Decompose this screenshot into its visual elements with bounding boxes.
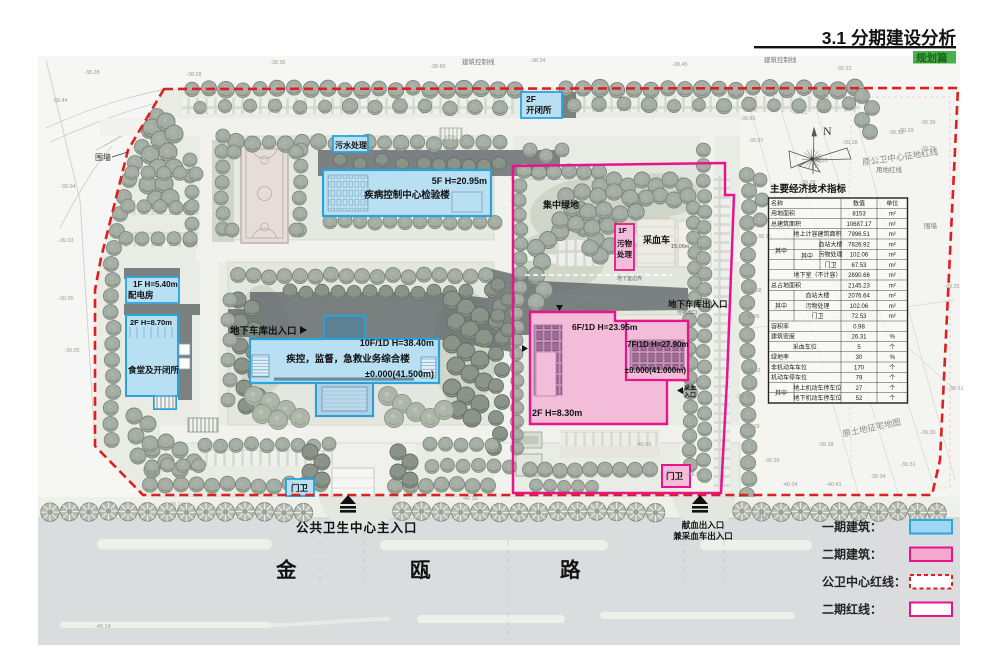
svg-text:其中: 其中: [801, 252, 813, 260]
svg-text:-40.14: -40.14: [168, 502, 184, 508]
svg-text:地下车库出入口: 地下车库出入口: [230, 325, 297, 337]
svg-text:-40.41: -40.41: [826, 482, 842, 488]
svg-text:-39.26: -39.26: [764, 458, 780, 464]
svg-text:2F: 2F: [526, 94, 536, 104]
svg-text:-39.31: -39.31: [900, 462, 916, 468]
svg-text:7826.92: 7826.92: [848, 242, 870, 248]
svg-text:27: 27: [856, 386, 863, 392]
svg-text:0.98: 0.98: [853, 324, 865, 330]
svg-text:疾病控制中心检验楼: 疾病控制中心检验楼: [364, 189, 450, 201]
svg-text:72.53: 72.53: [851, 314, 867, 320]
svg-text:m²: m²: [889, 294, 896, 300]
svg-text:2F H=8.30m: 2F H=8.30m: [532, 408, 582, 418]
svg-text:26.31: 26.31: [851, 335, 867, 341]
svg-text:围墙: 围墙: [95, 152, 111, 162]
svg-text:个: 个: [889, 344, 895, 351]
svg-text:-39.04: -39.04: [60, 184, 76, 190]
svg-text:52: 52: [856, 396, 863, 402]
svg-text:二期建筑：: 二期建筑：: [822, 547, 882, 562]
svg-text:m²: m²: [889, 273, 896, 279]
svg-text:m²: m²: [889, 232, 896, 238]
svg-text:一期建筑：: 一期建筑：: [822, 519, 882, 534]
svg-text:门卫: 门卫: [811, 312, 823, 320]
svg-text:规划篇: 规划篇: [916, 52, 948, 65]
svg-text:-38.95: -38.95: [744, 314, 760, 320]
svg-text:%: %: [890, 355, 896, 361]
svg-text:-39.30: -39.30: [920, 430, 936, 436]
svg-text:公共卫生中心主入口: 公共卫生中心主入口: [296, 520, 418, 535]
svg-text:102.06: 102.06: [850, 304, 869, 310]
svg-text:-38.28: -38.28: [84, 70, 100, 76]
svg-text:-39.11: -39.11: [746, 368, 761, 374]
svg-text:总建筑面积: 总建筑面积: [771, 220, 801, 228]
svg-text:主要经济技术指标: 主要经济技术指标: [770, 183, 847, 195]
svg-text:±0.000(41.500m): ±0.000(41.500m): [365, 369, 434, 379]
svg-text:总占地面积: 总占地面积: [771, 281, 801, 289]
svg-text:-38.45: -38.45: [672, 62, 688, 68]
svg-text:献血出入口: 献血出入口: [682, 520, 725, 530]
svg-text:m²: m²: [889, 314, 896, 320]
svg-text:用地面积: 用地面积: [771, 210, 795, 218]
svg-text:15.06m: 15.06m: [671, 244, 690, 250]
svg-text:食堂及开闭所: 食堂及开闭所: [128, 365, 180, 375]
svg-text:10687.17: 10687.17: [846, 222, 872, 228]
svg-text:-39.44: -39.44: [52, 98, 68, 104]
svg-text:地下机动车停车位: 地下机动车停车位: [793, 394, 841, 402]
svg-text:名称: 名称: [771, 199, 783, 207]
svg-text:-40.01: -40.01: [636, 442, 652, 448]
svg-text:2690.66: 2690.66: [848, 273, 870, 279]
svg-text:门卫: 门卫: [291, 483, 309, 493]
svg-text:-39.03: -39.03: [58, 238, 74, 244]
svg-text:1F H=5.40m: 1F H=5.40m: [133, 280, 178, 289]
svg-text:-40.14: -40.14: [95, 624, 111, 630]
svg-text:-39.28: -39.28: [818, 442, 834, 448]
svg-text:6F/1D H=23.95m: 6F/1D H=23.95m: [572, 322, 638, 332]
svg-text:%: %: [890, 335, 896, 341]
svg-text:-39.28: -39.28: [842, 140, 858, 146]
svg-text:m²: m²: [889, 242, 896, 248]
svg-text:血站大楼: 血站大楼: [818, 240, 842, 248]
svg-text:-38.28: -38.28: [186, 72, 202, 78]
svg-text:建筑控制线: 建筑控制线: [462, 57, 495, 66]
svg-text:-39.28: -39.28: [755, 514, 771, 520]
svg-text:3.1 分期建设分析: 3.1 分期建设分析: [822, 28, 957, 48]
svg-text:-39.19: -39.19: [744, 424, 760, 430]
svg-text:-39.81: -39.81: [740, 116, 756, 122]
svg-text:地上计容建筑面积: 地上计容建筑面积: [793, 230, 841, 238]
svg-text:m²: m²: [889, 263, 896, 269]
svg-text:污物出口: 污物出口: [677, 309, 697, 316]
svg-text:处理: 处理: [616, 249, 632, 259]
svg-text:机动车停车位: 机动车停车位: [771, 374, 807, 382]
svg-text:-38.36: -38.36: [270, 60, 286, 66]
svg-text:路: 路: [560, 558, 581, 582]
svg-text:10F/1D H=38.40m: 10F/1D H=38.40m: [360, 338, 434, 348]
svg-text:污物处理: 污物处理: [818, 251, 842, 259]
svg-text:-39.05: -39.05: [58, 296, 74, 302]
svg-text:-39.29: -39.29: [898, 128, 914, 134]
svg-text:其中: 其中: [775, 247, 787, 255]
svg-text:m²: m²: [889, 253, 896, 259]
svg-text:2076.64: 2076.64: [848, 294, 870, 300]
svg-text:地上机动车停车位: 地上机动车停车位: [793, 384, 841, 392]
svg-text:绿地率: 绿地率: [771, 353, 789, 361]
svg-text:N: N: [823, 124, 832, 138]
svg-text:个: 个: [889, 375, 895, 382]
svg-text:地下室（不计容）: 地下室（不计容）: [793, 271, 841, 279]
svg-text:30: 30: [856, 355, 863, 361]
svg-text:m²: m²: [889, 222, 896, 228]
svg-text:金: 金: [275, 558, 297, 582]
svg-text:地下室边界: 地下室边界: [617, 275, 642, 282]
svg-text:-39.25: -39.25: [944, 284, 960, 290]
svg-text:-39.97: -39.97: [748, 138, 764, 144]
svg-text:-39.34: -39.34: [870, 474, 886, 480]
svg-text:容积率: 容积率: [771, 322, 789, 330]
svg-text:m²: m²: [889, 283, 896, 289]
svg-text:-39.08: -39.08: [746, 288, 762, 294]
svg-text:7F/1D H=27.90m: 7F/1D H=27.90m: [627, 340, 689, 349]
svg-text:兼采血车出入口: 兼采血车出入口: [672, 531, 733, 541]
svg-text:采血车: 采血车: [642, 234, 670, 245]
svg-text:集中绿地: 集中绿地: [542, 199, 579, 210]
svg-text:-40.16: -40.16: [462, 496, 478, 502]
svg-text:8153: 8153: [852, 212, 866, 218]
svg-text:入口: 入口: [683, 392, 696, 399]
svg-text:采血: 采血: [684, 384, 696, 392]
svg-text:67.53: 67.53: [851, 263, 867, 269]
svg-text:2F H=8.70m: 2F H=8.70m: [130, 318, 172, 327]
svg-text:开闭所: 开闭所: [526, 105, 552, 115]
svg-text:79: 79: [856, 376, 863, 382]
svg-text:m²: m²: [889, 304, 896, 310]
svg-text:其中: 其中: [775, 389, 787, 397]
svg-text:围墙: 围墙: [924, 221, 938, 230]
svg-text:门卫: 门卫: [824, 261, 836, 269]
svg-text:用地红线: 用地红线: [876, 165, 903, 174]
svg-text:门卫: 门卫: [666, 471, 684, 481]
svg-text:1F: 1F: [618, 226, 627, 235]
svg-text:血站大楼: 血站大楼: [805, 292, 829, 300]
svg-text:非机动车车位: 非机动车车位: [771, 363, 807, 371]
svg-text:单位: 单位: [886, 199, 898, 207]
svg-text:其中: 其中: [775, 302, 787, 310]
svg-text:地下车库出入口: 地下车库出入口: [668, 299, 728, 309]
svg-text:个: 个: [889, 385, 895, 392]
svg-text:-39.39: -39.39: [920, 120, 936, 126]
svg-text:m²: m²: [889, 212, 896, 218]
svg-text:-39.05: -39.05: [64, 348, 80, 354]
svg-text:公卫中心红线：: 公卫中心红线：: [822, 574, 906, 589]
svg-text:-39.19: -39.19: [686, 472, 702, 478]
svg-text:疾控，监督，急救业务综合楼: 疾控，监督，急救业务综合楼: [286, 353, 410, 365]
svg-text:-40.04: -40.04: [782, 482, 798, 488]
svg-text:-38.60: -38.60: [430, 64, 446, 70]
svg-text:污物处理: 污物处理: [805, 302, 829, 310]
svg-text:-39.21: -39.21: [792, 110, 808, 116]
svg-text:102.06: 102.06: [850, 253, 869, 259]
svg-text:建筑控制线: 建筑控制线: [764, 55, 797, 64]
svg-text:个: 个: [889, 364, 895, 371]
svg-text:-39.33: -39.33: [836, 66, 852, 72]
svg-text:-39.32: -39.32: [856, 506, 872, 512]
svg-text:瓯: 瓯: [410, 559, 431, 582]
svg-text:7996.51: 7996.51: [848, 232, 870, 238]
svg-text:污水处理: 污水处理: [335, 140, 367, 150]
svg-text:-39.51: -39.51: [948, 386, 964, 392]
svg-text:-39.12: -39.12: [736, 394, 752, 400]
svg-text:建筑密度: 建筑密度: [771, 333, 795, 341]
svg-text:配电房: 配电房: [128, 290, 154, 300]
svg-text:污物: 污物: [617, 238, 632, 248]
svg-text:二期红线：: 二期红线：: [822, 602, 882, 617]
svg-text:采血车位: 采血车位: [793, 343, 817, 351]
svg-text:±0.000(41.000m): ±0.000(41.000m): [625, 366, 687, 375]
svg-text:2145.23: 2145.23: [848, 283, 870, 289]
svg-text:个: 个: [889, 395, 895, 402]
svg-text:-38.34: -38.34: [530, 58, 546, 64]
svg-text:5F H=20.95m: 5F H=20.95m: [432, 176, 487, 186]
svg-text:数值: 数值: [853, 199, 865, 207]
svg-text:170: 170: [854, 365, 865, 371]
